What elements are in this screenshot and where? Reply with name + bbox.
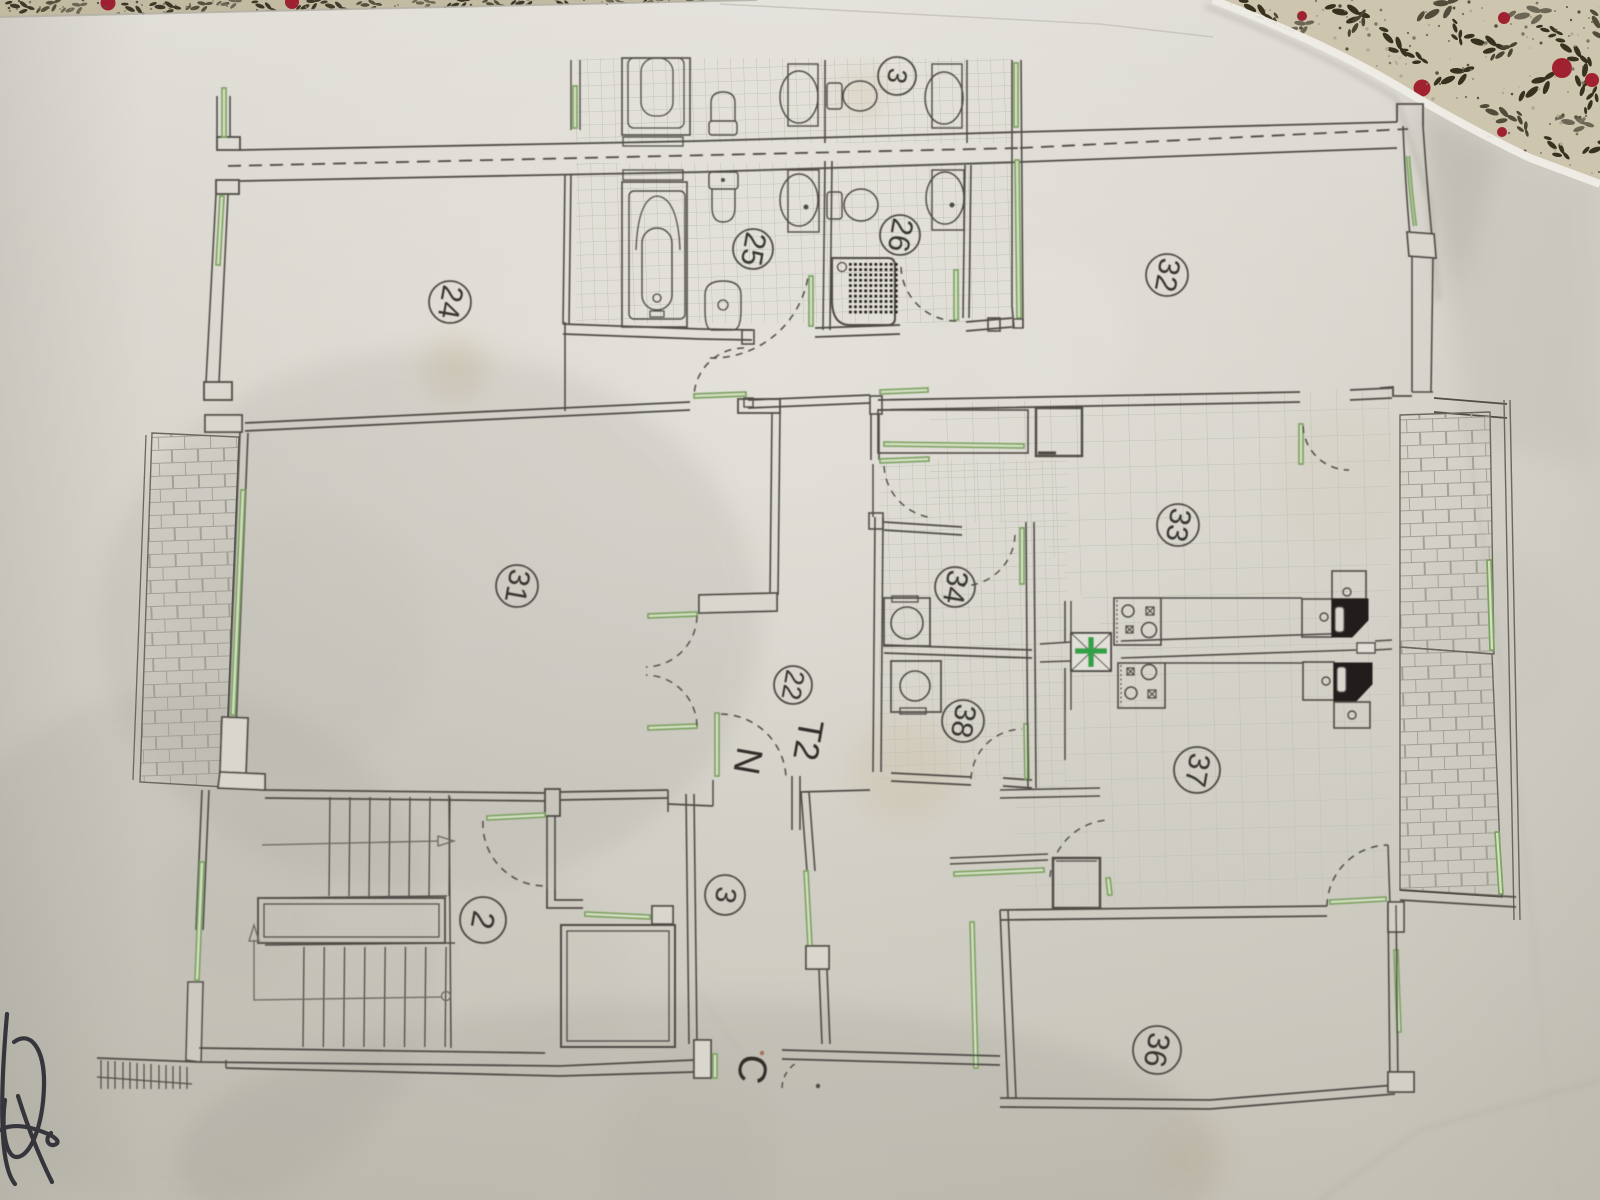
svg-text:33: 33 (1159, 506, 1197, 545)
svg-text:24: 24 (431, 283, 469, 322)
svg-text:32: 32 (1148, 256, 1186, 295)
svg-text:38: 38 (944, 702, 982, 741)
svg-text:37: 37 (1178, 751, 1216, 790)
svg-text:26: 26 (881, 216, 919, 255)
svg-text:31: 31 (498, 567, 536, 606)
svg-text:T2: T2 (785, 716, 831, 763)
svg-text:25: 25 (734, 230, 772, 269)
svg-text:34: 34 (936, 568, 974, 607)
svg-text:22: 22 (776, 668, 811, 703)
svg-text:36: 36 (1137, 1030, 1177, 1070)
